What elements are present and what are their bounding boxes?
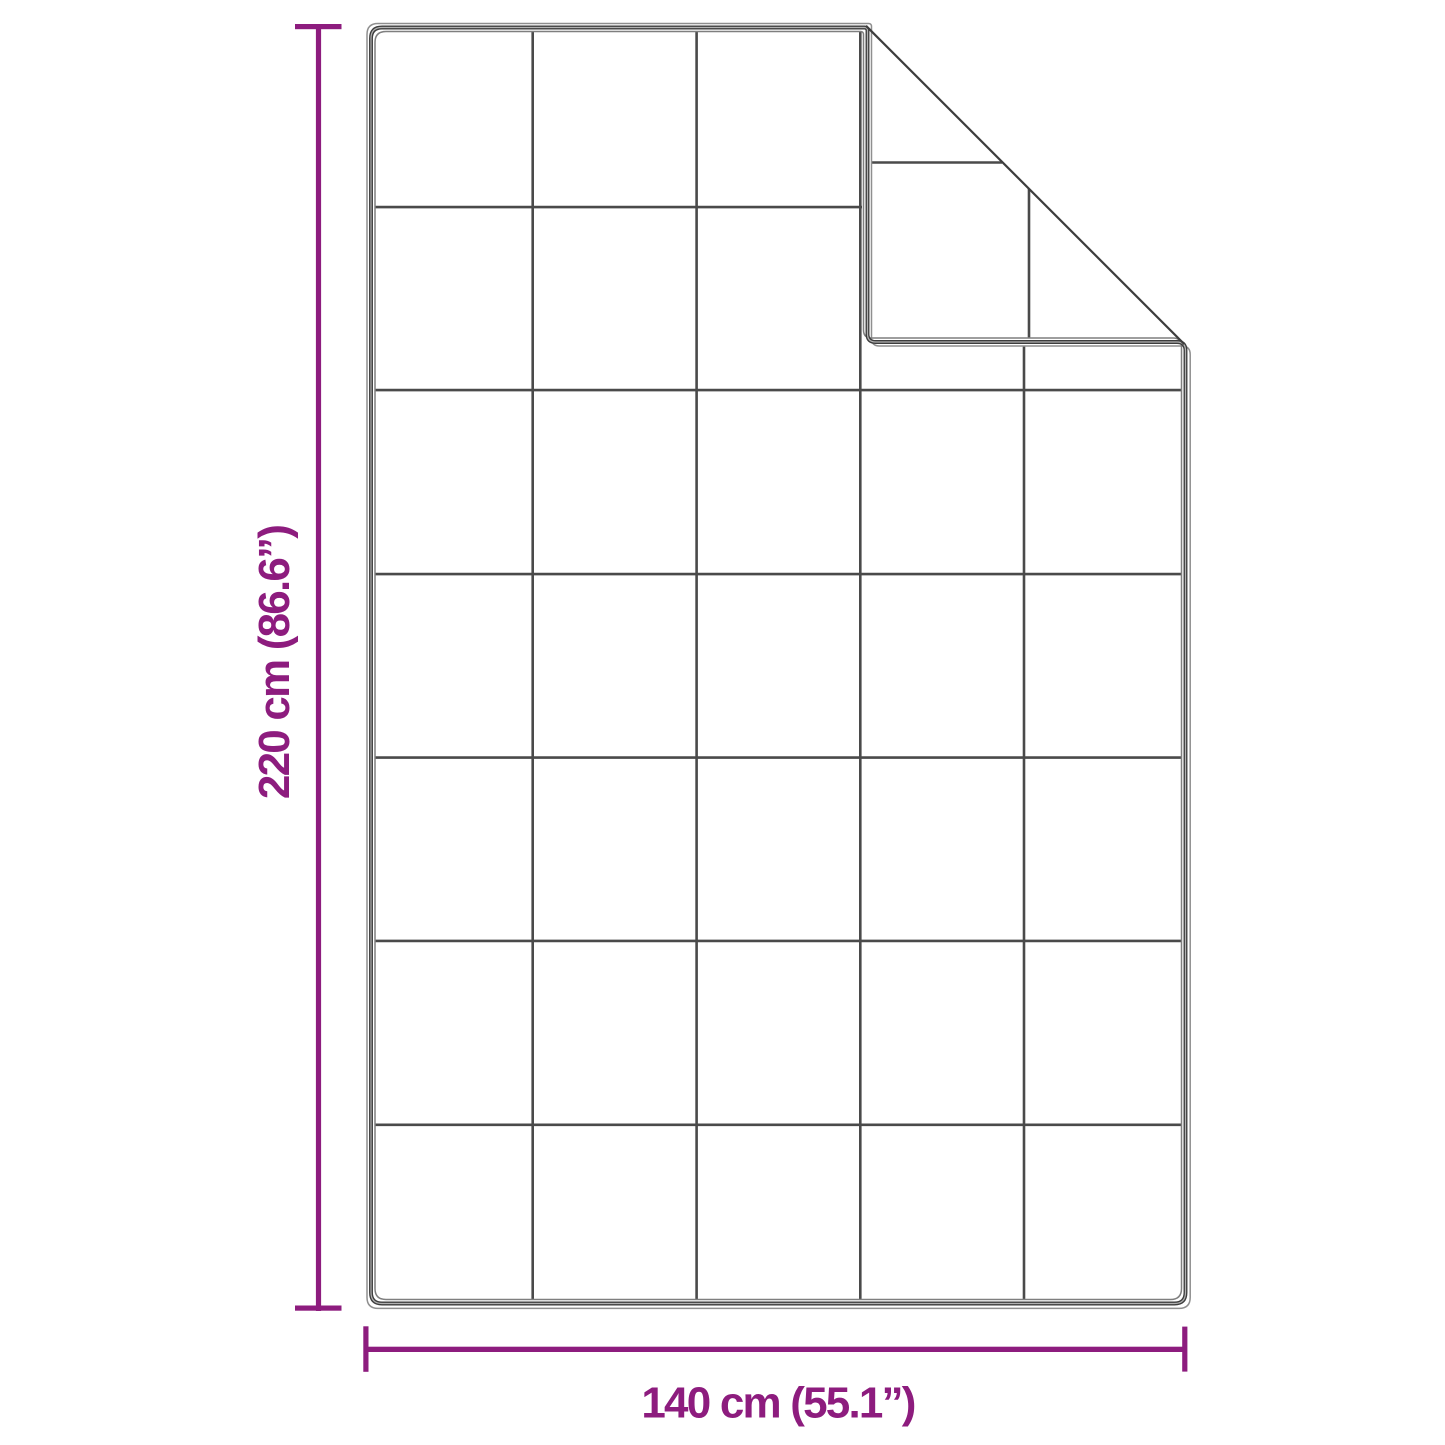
svg-text:140 cm (55.1”): 140 cm (55.1”) <box>641 1379 914 1428</box>
svg-text:220 cm (86.6”): 220 cm (86.6”) <box>250 526 299 799</box>
